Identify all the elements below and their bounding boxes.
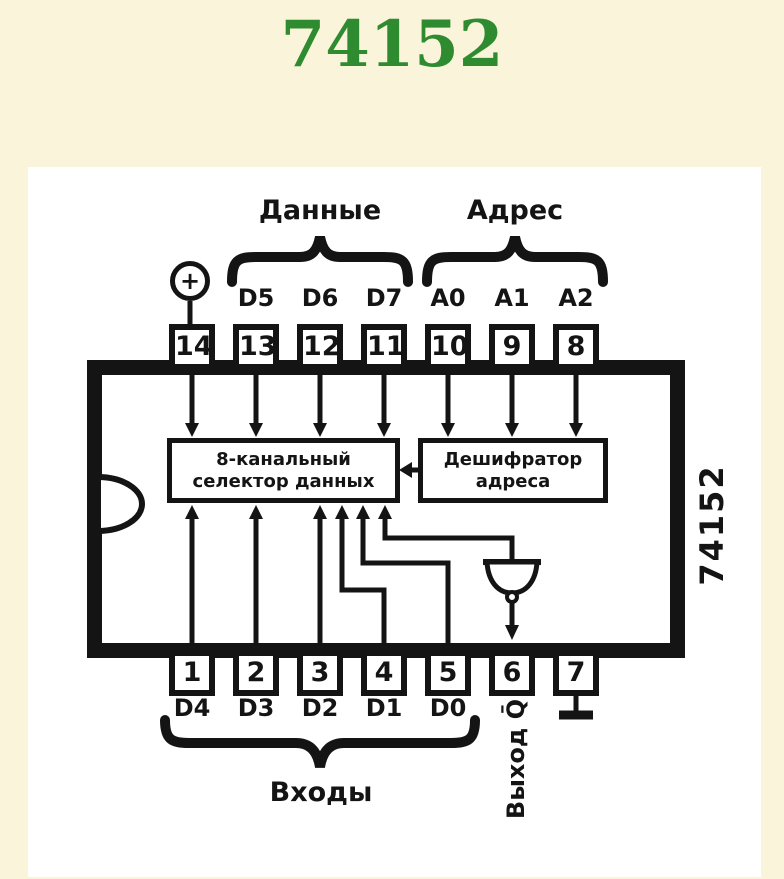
decoder-block-line1: Дешифратор [423, 449, 603, 471]
signal-label-d1: D1 [352, 694, 416, 722]
signal-label-d7: D7 [352, 284, 416, 312]
signal-label-a0: A0 [416, 284, 480, 312]
gate-feed-wire [385, 517, 512, 560]
pin-12: 12 [297, 324, 343, 370]
selector-block-line1: 8-канальный [172, 449, 395, 471]
selector-block-line2: селектор данных [172, 471, 395, 493]
decoder-block: Дешифратор адреса [418, 438, 608, 503]
inverter-gate-icon [483, 562, 541, 602]
signal-label-d0: D0 [416, 694, 480, 722]
signal-label-d2: D2 [288, 694, 352, 722]
pin-13: 13 [233, 324, 279, 370]
signal-label-a2: A2 [544, 284, 608, 312]
address-group-label: Адрес [405, 195, 625, 226]
wiring-layer [28, 167, 761, 877]
data-group-label: Данные [210, 195, 430, 226]
decoder-block-line2: адреса [423, 471, 603, 493]
arrowheads-up [185, 505, 392, 519]
pin-2: 2 [233, 650, 279, 696]
pin-3: 3 [297, 650, 343, 696]
data-group-brace [232, 237, 408, 282]
power-plus-icon: + [170, 261, 210, 301]
selector-block: 8-канальный селектор данных [167, 438, 400, 503]
pin-11: 11 [361, 324, 407, 370]
signal-label-d3: D3 [224, 694, 288, 722]
pin-7: 7 [553, 650, 599, 696]
address-group-brace [427, 237, 603, 282]
side-part-number: 74152 [693, 455, 727, 595]
signal-label-a1: A1 [480, 284, 544, 312]
pin-1: 1 [169, 650, 215, 696]
signal-label-d4: D4 [160, 694, 224, 722]
signal-label-d5: D5 [224, 284, 288, 312]
package-notch-icon [98, 477, 142, 531]
arrowheads-down [185, 423, 583, 437]
gate-output-arrow [505, 625, 519, 640]
inputs-group-label: Входы [211, 777, 431, 808]
output-q-label: Выход Q̄ [502, 689, 532, 829]
pin-8: 8 [553, 324, 599, 370]
page-title: 74152 [0, 6, 784, 84]
signal-label-d6: D6 [288, 284, 352, 312]
decoder-selector-arrow [399, 462, 412, 478]
diagram-panel: Данные Адрес Входы + D5 D6 D7 A0 A1 A2 1… [28, 167, 761, 877]
inputs-group-brace [165, 720, 475, 767]
pin-5: 5 [425, 650, 471, 696]
pin-10: 10 [425, 324, 471, 370]
pin-14: 14 [169, 324, 215, 370]
pin-4: 4 [361, 650, 407, 696]
pin-9: 9 [489, 324, 535, 370]
